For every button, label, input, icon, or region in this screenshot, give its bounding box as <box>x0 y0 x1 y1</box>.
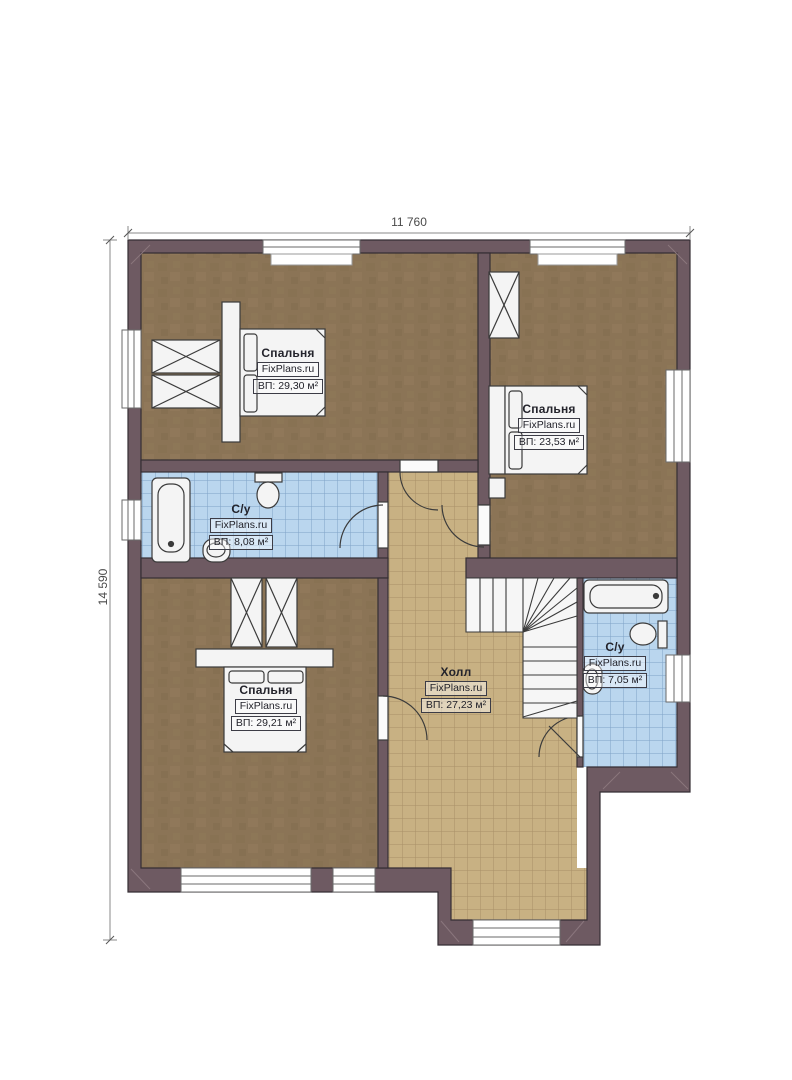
window-left-bathroom1 <box>122 500 141 540</box>
room-label-bedroom-top-left: Спальня FixPlans.ru ВП: 29,30 м² <box>243 347 333 394</box>
room-area: ВП: 7,05 м² <box>583 673 647 688</box>
dimension-height-label: 14 590 <box>96 517 110 657</box>
bathtub-bathroom2 <box>584 580 668 613</box>
wall-bedrooms-divider <box>478 253 490 505</box>
bathtub-bathroom1 <box>152 478 190 562</box>
room-area: ВП: 29,30 м² <box>253 379 323 394</box>
window-right-bedroom2 <box>666 370 690 462</box>
room-name: Спальня <box>243 347 333 360</box>
window-left-bedroom1 <box>122 330 141 408</box>
window-bottom-hall <box>473 920 560 945</box>
watermark-badge: FixPlans.ru <box>518 418 581 433</box>
room-name: Холл <box>411 666 501 679</box>
room-name: С/у <box>198 503 284 516</box>
watermark-badge: FixPlans.ru <box>257 362 320 377</box>
room-area: ВП: 23,53 м² <box>514 435 584 450</box>
floor-plan-drawing <box>0 0 792 1080</box>
floor-plan-canvas: 11 760 14 590 Спальня FixPlans.ru ВП: 29… <box>0 0 792 1080</box>
watermark-badge: FixPlans.ru <box>210 518 273 533</box>
window-top-bedroom1 <box>263 240 360 265</box>
room-name: Спальня <box>502 403 596 416</box>
room-area: ВП: 29,21 м² <box>231 716 301 731</box>
wall-stairs-top <box>466 558 677 578</box>
hall-floor-bottom <box>451 868 587 920</box>
window-bottom-bedroom3-large <box>181 868 311 892</box>
room-label-bathroom-right: С/у FixPlans.ru ВП: 7,05 м² <box>579 641 651 688</box>
room-area: ВП: 27,23 м² <box>421 698 491 713</box>
room-label-bathroom-left: С/у FixPlans.ru ВП: 8,08 м² <box>198 503 284 550</box>
wardrobe-bedroom2 <box>489 272 519 338</box>
watermark-badge: FixPlans.ru <box>425 681 488 696</box>
room-name: Спальня <box>221 684 311 697</box>
room-label-hall: Холл FixPlans.ru ВП: 27,23 м² <box>411 666 501 713</box>
room-label-bedroom-bottom-left: Спальня FixPlans.ru ВП: 29,21 м² <box>221 684 311 731</box>
window-top-bedroom2 <box>530 240 625 265</box>
nightstand-bedroom2 <box>489 478 505 498</box>
dimension-width-label: 11 760 <box>128 215 690 229</box>
room-label-bedroom-top-right: Спальня FixPlans.ru ВП: 23,53 м² <box>502 403 596 450</box>
room-area: ВП: 8,08 м² <box>209 535 273 550</box>
room-name: С/у <box>579 641 651 654</box>
watermark-badge: FixPlans.ru <box>235 699 298 714</box>
window-right-bathroom2 <box>666 655 690 702</box>
watermark-badge: FixPlans.ru <box>584 656 647 671</box>
window-bottom-bedroom3-small <box>333 868 375 892</box>
